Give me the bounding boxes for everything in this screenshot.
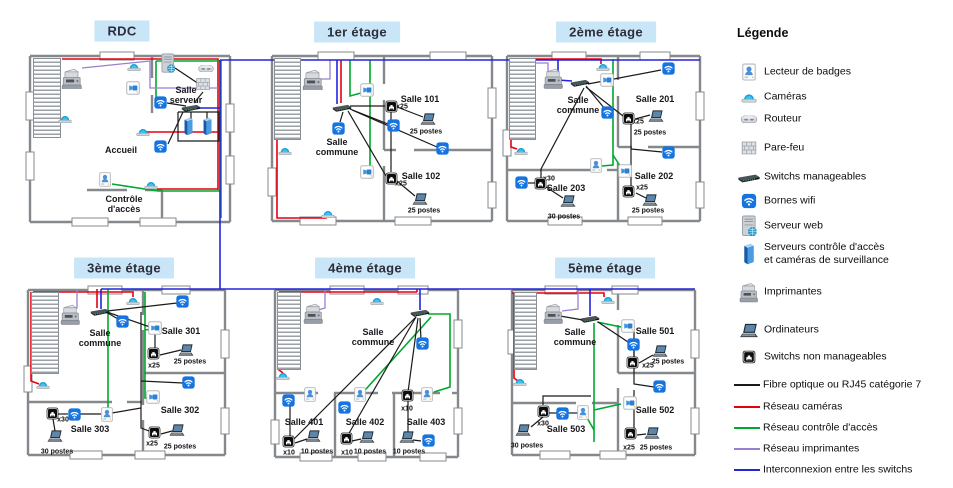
window [268,168,276,196]
badge-reader-icon [304,387,316,402]
computer-icon [515,423,531,436]
access-control-server-icon [183,117,194,136]
count-label: 10 postes [301,449,333,456]
legend-line-label: Interconnexion entre les switchs [763,463,912,476]
count-label: x30 [537,421,549,428]
wire-controle-acces [145,292,151,398]
staircase [514,292,537,370]
room-label: Contrôle d'accès [106,194,143,214]
room-label: Salle 302 [161,405,200,415]
count-label: 25 postes [632,208,664,215]
box-camera-icon [360,83,374,97]
floor-title-etage5: 5ème étage [555,258,655,279]
printer-icon [301,68,325,91]
legend-line-label: Fibre optique ou RJ45 catégorie 7 [763,378,921,391]
window [140,218,176,226]
unmanaged-switch-icon [282,435,295,448]
staircase [509,58,536,140]
window [162,286,190,294]
unmanaged-switch-icon [148,426,161,439]
router-icon [198,64,214,73]
computer-icon [652,344,668,357]
room-label: Salle commune [557,95,600,115]
window [221,408,229,434]
legend-line-label: Réseau contrôle d'accès [763,421,878,434]
legend-title: Légende [737,26,788,40]
computer-icon [420,112,436,125]
count-label: x10 [341,450,353,457]
window [226,156,234,184]
unmanaged-switch-icon [385,100,398,113]
window [226,104,234,132]
count-label: 25 postes [640,445,672,452]
web-server-icon [161,53,175,74]
legend-dome-camera-icon [741,91,757,103]
dome-camera-icon [136,126,150,137]
wire-controle-acces [428,314,450,392]
room-label: Salle commune [79,328,122,348]
count-label: 25 postes [410,129,442,136]
count-label: x25 [146,441,158,448]
wifi-ap-icon [387,119,400,132]
window [691,330,699,358]
count-label: 25 postes [174,359,206,366]
legend-line-label: Réseau caméras [763,400,842,413]
window [488,88,496,118]
wifi-ap-icon [662,146,675,159]
window [488,182,496,208]
dome-camera-icon [370,295,384,306]
box-camera-icon [126,81,140,95]
unmanaged-switch-icon [340,432,353,445]
managed-switch-icon [181,102,201,112]
computer-icon [642,193,658,206]
legend-line-wire-reseau-imprimantes [734,448,760,450]
floor-title-etage1: 1er étage [314,22,400,43]
dome-camera-icon [514,145,528,156]
legend-web-server-icon [742,215,757,237]
wifi-ap-icon [176,295,189,308]
unmanaged-switch-icon [385,172,398,185]
wifi-ap-icon [282,394,295,407]
legend-item-label: Ordinateurs [764,323,819,336]
count-label: x25 [623,445,635,452]
floor-title-rdc: RDC [94,21,149,42]
box-camera-icon [148,321,162,335]
wifi-ap-icon [662,62,675,75]
legend-line-wire-fibre-rj45 [734,384,760,386]
legend-line-label: Réseau imprimantes [763,442,859,455]
wire-fibre-rj45 [631,149,662,152]
managed-switch-icon [410,307,430,317]
printer-icon [59,303,82,325]
wire-fibre-rj45 [588,70,661,84]
box-camera-icon [621,319,635,333]
window [454,408,462,434]
unmanaged-switch-icon [46,407,59,420]
legend-item-label: Switchs non manageables [764,350,887,363]
wire-fibre-rj45 [112,408,141,413]
window [318,52,354,60]
staircase [33,58,61,138]
unmanaged-switch-icon [626,356,639,369]
count-label: 25 postes [408,208,440,215]
legend-line-wire-controle-acces [734,427,760,429]
unmanaged-switch-icon [622,112,635,125]
wifi-ap-icon [332,122,345,135]
dome-camera-icon [36,379,50,390]
window [271,420,279,444]
room-label: Salle 503 [547,424,586,434]
window [430,52,466,60]
legend-badge-reader-icon [742,63,756,81]
box-camera-icon [146,390,160,404]
box-camera-icon [360,165,374,179]
printer-icon [302,302,325,324]
computer-icon [47,429,63,442]
unmanaged-switch-icon [624,427,637,440]
staircase [274,58,301,140]
legend-router-icon [741,114,758,123]
wifi-ap-icon [182,376,195,389]
legend-item-label: Serveur web [764,219,823,232]
wire-controle-acces [112,184,221,191]
dome-camera-icon [596,61,610,72]
room-label: Salle commune [352,327,395,347]
legend-item-label: Serveurs contrôle d'accès et caméras de … [764,241,889,267]
dome-camera-icon [126,295,140,306]
room-label: Salle 201 [636,94,675,104]
dome-camera-icon [278,145,292,156]
wifi-ap-icon [116,315,129,328]
legend-item-label: Lecteur de badges [764,65,851,78]
count-label: 30 postes [41,449,73,456]
room-label: Salle commune [316,137,359,157]
window [628,217,662,225]
wire-fibre-rj45 [340,112,343,122]
box-camera-icon [600,73,614,87]
legend-item-label: Routeur [764,112,801,125]
wire-controle-acces [597,322,621,327]
window [454,320,462,348]
computer-icon [399,430,415,443]
wire-reseau-cameras [62,59,218,190]
legend-line-wire-interconnexion-switchs [734,469,760,471]
window [612,286,638,294]
room-label: Salle 501 [636,326,675,336]
room-label: Salle 303 [71,424,110,434]
badge-reader-icon [421,387,433,402]
room-label: Salle 102 [402,171,441,181]
count-label: 25 postes [652,359,684,366]
network-architecture-diagram: RDCSalle serveurAccueilContrôle d'accès1… [0,0,953,488]
badge-reader-icon [101,407,113,422]
box-camera-icon [618,164,632,178]
access-control-server-icon [202,117,213,136]
computer-icon [560,194,576,207]
wifi-ap-icon [627,338,640,351]
unmanaged-switch-icon [401,389,414,402]
badge-reader-icon [99,172,111,187]
computer-icon [169,423,185,436]
computer-icon [648,109,664,122]
wifi-ap-icon [338,401,351,414]
count-label: x25 [636,185,648,192]
legend-access-control-server-icon [743,243,756,265]
window [395,217,431,225]
legend-item-label: Caméras [764,90,807,103]
count-label: x25 [148,363,160,370]
computer-icon [178,343,194,356]
wire-fibre-rj45 [168,112,183,144]
room-label: Salle commune [554,327,597,347]
dome-camera-icon [513,376,527,387]
window [135,451,165,459]
window [640,52,670,60]
count-label: 10 postes [354,449,386,456]
room-label: Salle 203 [547,183,586,193]
floor-title-etage4: 4ème étage [315,258,415,279]
window [221,330,229,358]
count-label: 25 postes [634,130,666,137]
badge-reader-icon [577,405,589,420]
legend-item-label: Switchs manageables [764,170,866,183]
room-label: Salle 202 [635,171,674,181]
room-label: Salle 403 [407,417,446,427]
legend-line-wire-reseau-cameras [734,406,760,408]
dome-camera-icon [144,179,158,190]
window [26,152,34,180]
computer-icon [359,430,375,443]
legend-firewall-icon [742,141,757,154]
window [540,451,570,459]
count-label: 30 postes [511,443,543,450]
managed-switch-icon [90,306,110,316]
room-label: Salle 401 [285,417,324,427]
window [72,218,108,226]
printer-icon [542,302,565,324]
room-label: Salle 301 [162,326,201,336]
printer-icon [60,67,84,90]
legend-wifi-ap-icon [742,194,757,209]
wifi-ap-icon [556,407,569,420]
legend-item-label: Pare-feu [764,141,804,154]
wifi-ap-icon [154,140,167,153]
wifi-ap-icon [601,106,614,119]
unmanaged-switch-icon [147,347,160,360]
firewall-icon [196,78,210,90]
legend-computer-icon [740,322,759,338]
wifi-ap-icon [515,176,528,189]
printer-icon [542,67,565,89]
room-label: Accueil [105,145,137,155]
wifi-ap-icon [653,380,666,393]
staircase [31,292,59,374]
badge-reader-icon [590,158,602,173]
count-label: x25 [396,104,408,111]
legend-printer-icon [738,282,760,303]
badge-reader-icon [354,387,366,402]
window [70,451,102,459]
window [696,92,704,120]
count-label: 30 postes [548,214,580,221]
unmanaged-switch-icon [537,405,550,418]
wifi-ap-icon [436,142,449,155]
count-label: x10 [283,450,295,457]
legend-managed-switch-icon [738,171,761,183]
count-label: 25 postes [164,444,196,451]
dome-camera-icon [127,61,141,72]
dome-camera-icon [58,113,72,124]
floor-title-etage3: 3ème étage [74,258,174,279]
count-label: x10 [401,406,413,413]
managed-switch-icon [332,102,352,112]
computer-icon [305,429,321,442]
legend-item-label: Imprimantes [764,285,822,298]
window [696,182,704,208]
legend-item-label: Bornes wifi [764,194,815,207]
wifi-ap-icon [154,96,167,109]
wifi-ap-icon [422,434,435,447]
computer-icon [644,426,660,439]
room-label: Salle 402 [346,417,385,427]
floor-title-etage2: 2ème étage [556,22,656,43]
wire-fibre-rj45 [141,381,183,383]
room-label: Salle 502 [636,405,675,415]
legend-unmanaged-switch-icon [742,350,756,364]
unmanaged-switch-icon [534,177,547,190]
wifi-ap-icon [416,337,429,350]
box-camera-icon [623,396,637,410]
staircase [277,292,301,370]
dome-camera-icon [321,208,335,219]
dome-camera-icon [601,294,615,305]
window [600,451,626,459]
computer-icon [412,192,428,205]
count-label: 10 postes [393,449,425,456]
unmanaged-switch-icon [622,185,635,198]
window [691,408,699,434]
dome-camera-icon [276,370,290,381]
managed-switch-icon [580,313,600,323]
managed-switch-icon [570,77,590,87]
wifi-ap-icon [68,408,81,421]
